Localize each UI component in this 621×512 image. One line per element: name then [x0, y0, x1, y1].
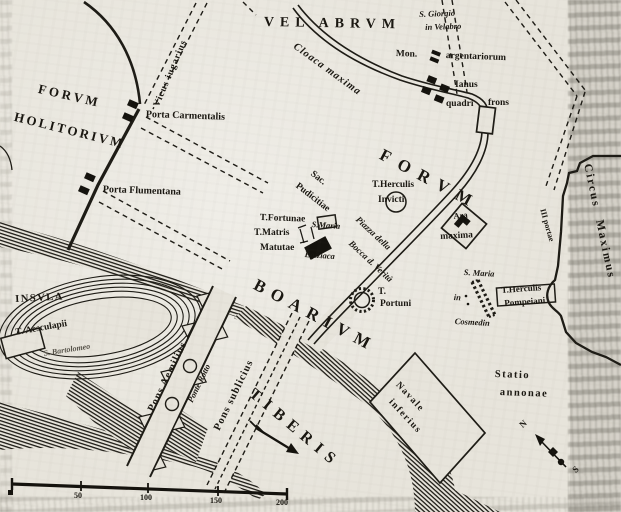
label-s-giorgio: in Velabro — [425, 22, 461, 32]
scale-tick-label: 100 — [140, 494, 152, 502]
label-ianus-quadrifrons: Ianus — [455, 81, 478, 91]
label-s-maria-cosmedin: in — [454, 293, 462, 302]
label-t-portuni: T. — [378, 288, 386, 298]
compass-icon — [535, 434, 566, 467]
label-velabrum: VEL ABRVM — [264, 16, 401, 32]
label-mon-argentariorum: argentariorum — [446, 52, 506, 64]
s-maria-cosmedin-plan — [465, 280, 495, 317]
t-portuni-plan — [355, 293, 370, 308]
scale-tick-label: 200 — [276, 499, 288, 507]
label-t-matris-matutae: T.Matris — [254, 229, 289, 239]
label-mon-argentariorum: Mon. — [396, 50, 418, 60]
label-t-matris-matutae: Matutae — [260, 244, 294, 254]
label-t-herculis-invicti: T.Herculis — [372, 181, 414, 191]
navale-inferius-plan — [370, 353, 485, 483]
label-ianus-quadrifrons: quadri — [446, 100, 473, 110]
ianus-quadrifrons-plan — [476, 106, 495, 134]
label-s-maria-cosmedin: Cosmedin — [455, 317, 490, 327]
scale-tick-label: 50 — [74, 492, 82, 500]
label-ara-maxima: Ara — [453, 211, 468, 221]
label-ara-maxima: maxima — [440, 231, 473, 242]
label-s-maria-egiziaca: Egiziaca — [304, 250, 335, 261]
label-ianus-quadrifrons: frons — [488, 99, 509, 109]
label-s-maria-egiziaca: S.Maria — [311, 220, 340, 230]
label-t-portuni: Portuni — [380, 300, 411, 310]
label-s-maria-cosmedin: S. Maria — [464, 268, 495, 278]
label-statio-annonae: annonae — [500, 388, 549, 400]
label-s-giorgio: S. Giorgio — [419, 9, 455, 19]
dashed-roads — [99, 0, 585, 270]
label-t-herculis-invicti: Invicti — [378, 196, 404, 206]
mon-argentariorum-blocks — [428, 50, 441, 64]
theatre-arc — [84, 2, 140, 104]
label-t-fortunae: T.Fortunae — [260, 214, 306, 225]
label-statio-annonae: Statio — [495, 370, 531, 382]
rome-forum-boarium-map: FORVM HOLITORIVM VEL ABRVM FORVM BOARIVM… — [0, 0, 621, 512]
scale-tick-label: 150 — [210, 497, 222, 505]
